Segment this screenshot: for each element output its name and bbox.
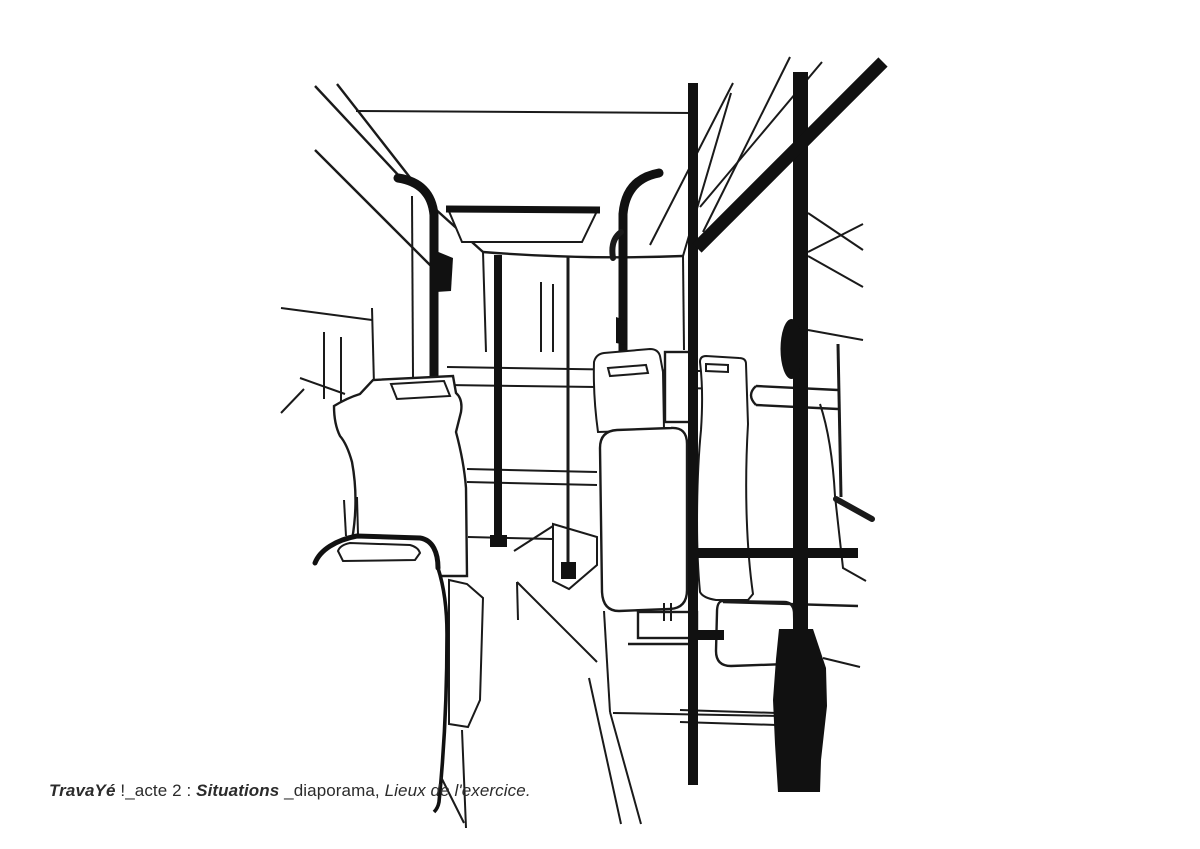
aisle-pole <box>688 83 698 785</box>
caption-segment: _diaporama, <box>279 781 384 800</box>
ceiling-hatch <box>446 209 600 242</box>
bus-interior-illustration <box>0 0 1200 849</box>
caption-title: TravaYé <box>49 781 116 800</box>
cord-handle <box>561 562 576 579</box>
horizontal-handrail <box>698 548 858 558</box>
diagonal-handrail <box>697 62 883 248</box>
handrail-bracket <box>698 630 724 640</box>
pole-clamp <box>436 251 453 292</box>
aisle-pole <box>494 255 502 537</box>
step-platform <box>553 524 597 589</box>
slide-page: TravaYé !_acte 2 : Situations _diaporama… <box>0 0 1200 849</box>
pole-foot <box>490 535 507 547</box>
front-grab-poles <box>490 62 883 792</box>
caption-act-title: Situations <box>196 781 279 800</box>
caption-subtitle: Lieux de l'exercice. <box>385 781 531 800</box>
left-seats <box>315 376 483 828</box>
seat-handle-slot <box>608 365 648 376</box>
seat-pedestal <box>449 580 483 727</box>
stop-button-housing <box>781 319 803 379</box>
rear-grab-poles <box>398 173 659 377</box>
caption-segment: !_acte 2 : <box>116 781 197 800</box>
seat-handle-slot <box>706 364 728 372</box>
seat-handle-slot <box>391 381 450 399</box>
seat-handle-slot <box>338 543 420 561</box>
caption: TravaYé !_acte 2 : Situations _diaporama… <box>49 781 531 800</box>
pole-clamp <box>616 317 627 345</box>
door-grip-bellows <box>773 629 827 792</box>
